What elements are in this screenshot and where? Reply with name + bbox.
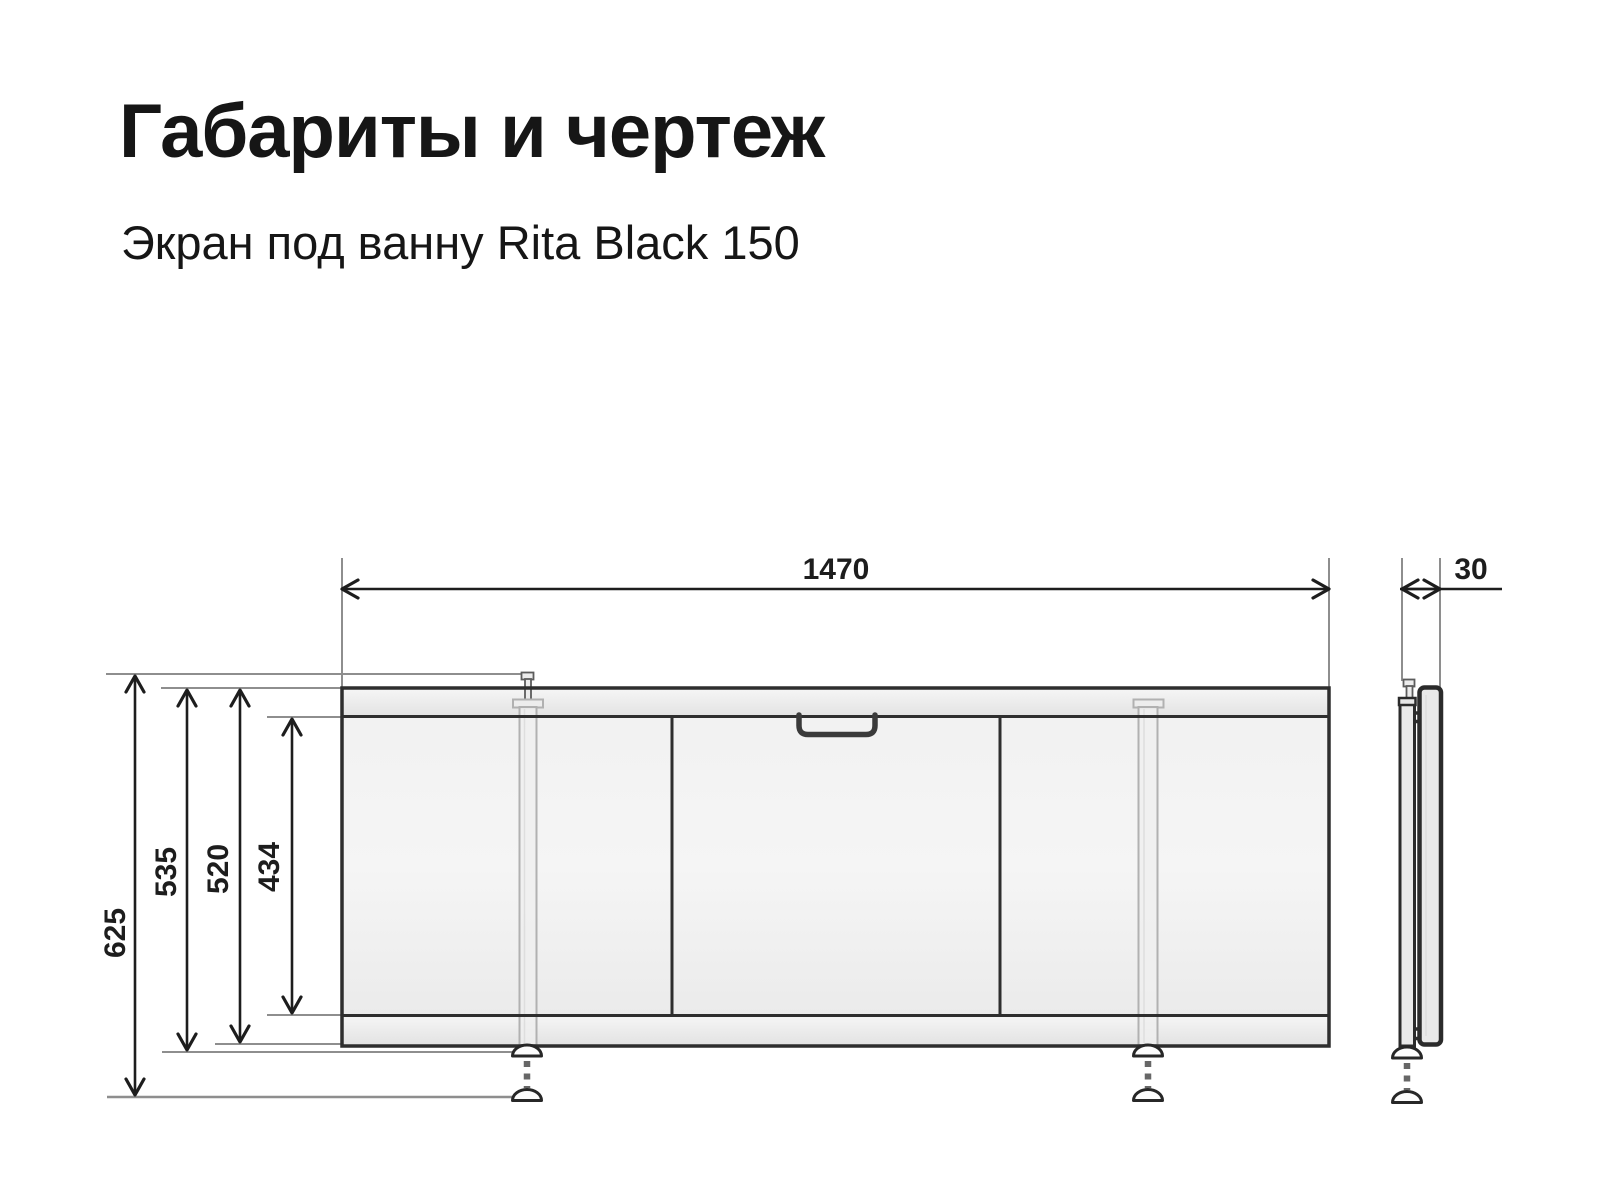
front-top-rail	[342, 688, 1329, 717]
right-foot	[1134, 1045, 1163, 1101]
front-panel-body	[342, 688, 1329, 1046]
dimension-height-520: 520	[202, 690, 240, 1042]
dim-label-625: 625	[99, 908, 132, 958]
side-leg-profile	[1400, 703, 1415, 1046]
left-foot-dome-extended	[513, 1090, 542, 1101]
side-foot-dome	[1393, 1047, 1422, 1058]
right-foot-dome	[1134, 1045, 1163, 1056]
front-bottom-rail	[342, 1015, 1329, 1046]
dim-label-434: 434	[253, 842, 286, 892]
dimension-height-625: 625	[99, 676, 135, 1095]
front-view	[342, 673, 1329, 1101]
dimension-depth-30: 30	[1400, 553, 1502, 589]
dimension-height-434: 434	[253, 719, 292, 1013]
left-foot-dome	[513, 1045, 542, 1056]
side-foot	[1393, 1047, 1422, 1103]
dim-label-30: 30	[1454, 553, 1487, 586]
left-foot	[513, 1045, 542, 1101]
side-foot-dome-extended	[1393, 1092, 1422, 1103]
left-leg-column	[520, 707, 537, 1045]
side-leg-cap	[1399, 698, 1416, 705]
right-foot-dome-extended	[1134, 1090, 1163, 1101]
dimension-height-535: 535	[150, 690, 187, 1050]
side-panel-profile	[1420, 688, 1442, 1045]
dim-label-520: 520	[202, 844, 235, 894]
dim-label-535: 535	[150, 847, 183, 897]
right-leg-column	[1139, 707, 1158, 1045]
side-view	[1393, 680, 1442, 1103]
dim-label-1470: 1470	[803, 553, 870, 586]
dimension-width-1470: 1470	[342, 553, 1329, 589]
technical-drawing: 1470 30 625 535 520 434	[0, 0, 1600, 1200]
